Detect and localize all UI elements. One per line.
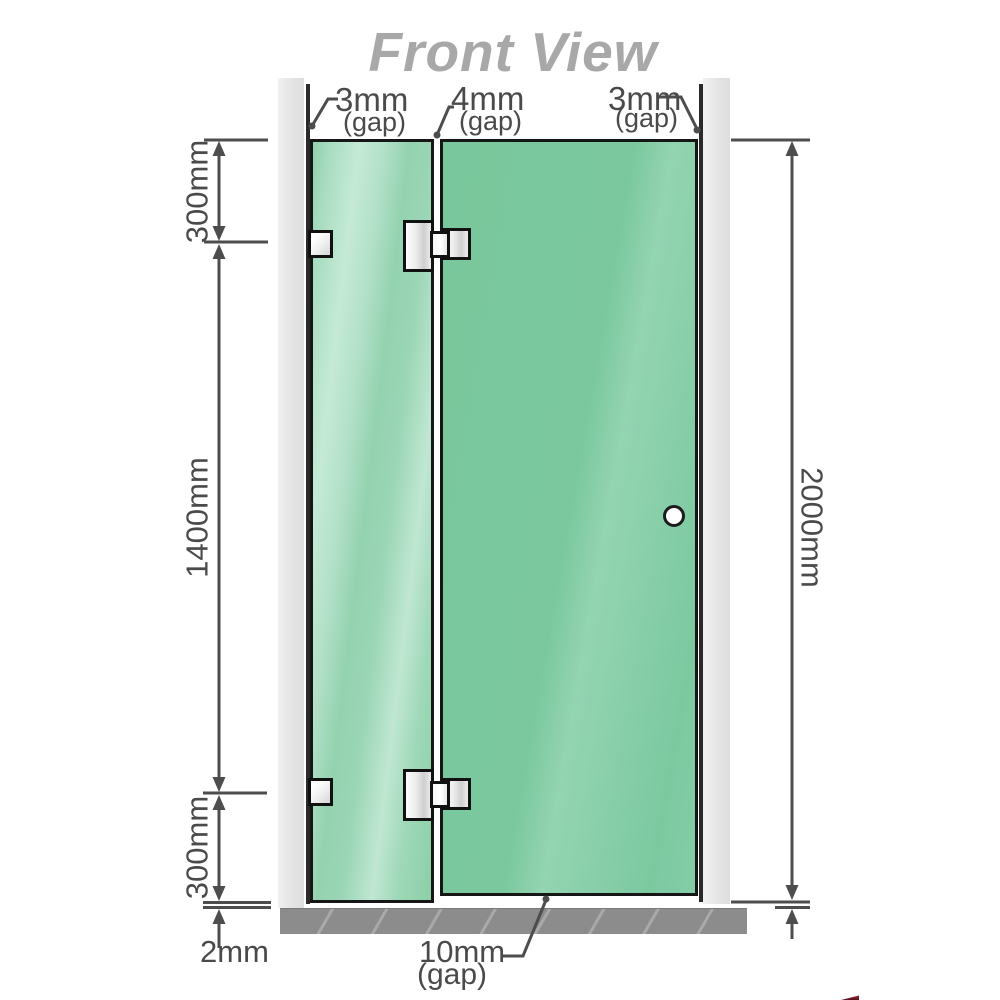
gap-note-top-left: (gap) bbox=[343, 109, 406, 136]
floor-base bbox=[280, 908, 747, 934]
dimension-overall-height: 2000mm bbox=[797, 458, 828, 598]
gap-note-top-right: (gap) bbox=[615, 105, 678, 132]
bottom-hinge-tongue bbox=[430, 781, 450, 808]
door-glass-panel bbox=[440, 139, 698, 896]
right-wall-channel bbox=[703, 78, 730, 904]
front-view-diagram: Front View bbox=[0, 0, 1000, 1000]
logo-remnant bbox=[841, 995, 859, 1000]
top-hinge-tongue bbox=[430, 231, 450, 258]
right-wall-edge-line bbox=[699, 84, 703, 902]
left-wall-channel bbox=[278, 78, 304, 908]
diagram-title: Front View bbox=[263, 20, 763, 84]
dimension-middle-left-height: 1400mm bbox=[182, 448, 213, 588]
gap-note-bottom: (gap) bbox=[417, 960, 487, 990]
top-wall-bracket bbox=[308, 230, 333, 258]
gap-note-top-middle: (gap) bbox=[459, 108, 522, 135]
bottom-wall-bracket bbox=[308, 778, 333, 806]
dimension-floor-clearance: 2mm bbox=[200, 936, 269, 967]
dimension-top-left-height: 300mm bbox=[182, 132, 213, 252]
dimension-bottom-left-height: 300mm bbox=[182, 788, 213, 908]
door-handle-knob bbox=[663, 505, 685, 527]
